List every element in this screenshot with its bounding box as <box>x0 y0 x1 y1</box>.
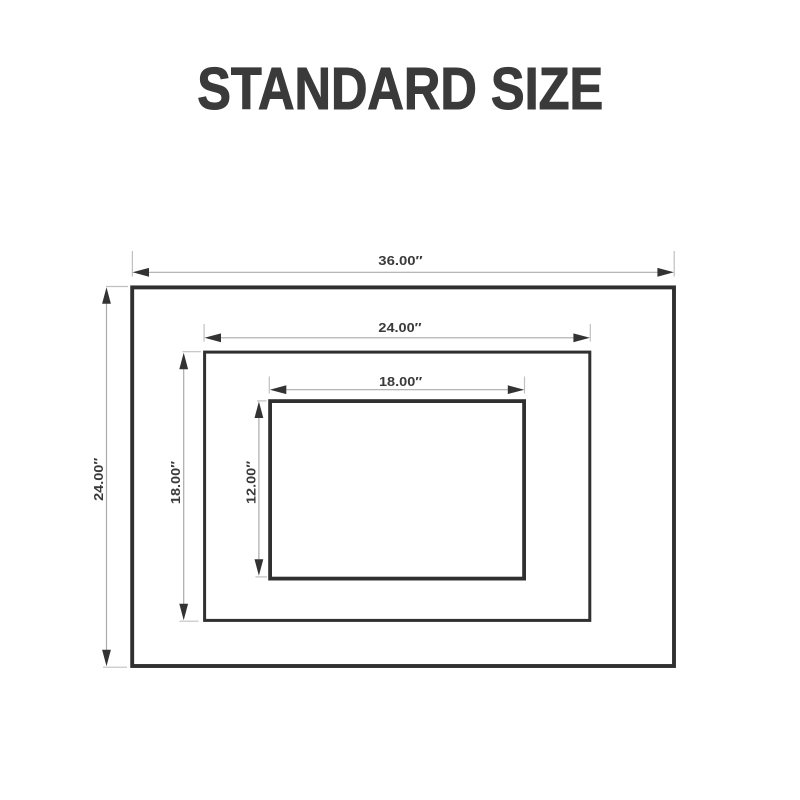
svg-text:24.00″: 24.00″ <box>91 458 106 501</box>
svg-text:12.00″: 12.00″ <box>244 461 259 504</box>
svg-text:18.00″: 18.00″ <box>379 374 422 389</box>
svg-text:24.00″: 24.00″ <box>378 320 421 335</box>
svg-text:18.00″: 18.00″ <box>168 461 183 504</box>
svg-text:36.00″: 36.00″ <box>378 253 422 268</box>
svg-text:STANDARD SIZE: STANDARD SIZE <box>197 55 603 122</box>
